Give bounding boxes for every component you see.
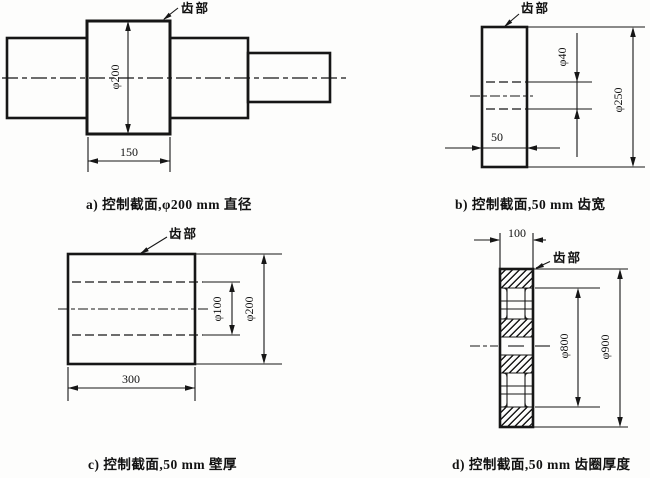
dim-outer-diameter: φ250	[611, 27, 636, 167]
extension-lines	[195, 254, 282, 364]
dim-bore-diameter: φ40	[555, 33, 580, 157]
gear-outline	[482, 27, 527, 167]
dim-bore-diameter: φ100	[210, 282, 235, 335]
gear-part-label: 齿部	[181, 1, 210, 16]
dim-outer-diameter: φ900	[598, 269, 623, 427]
dim-outer-diameter: φ200	[242, 254, 267, 364]
dim-label-100: 100	[508, 226, 526, 240]
caption-d: d) 控制截面,50 mm 齿圈厚度	[452, 453, 631, 473]
caption-c: c) 控制截面,50 mm 壁厚	[88, 453, 237, 473]
gear-part-label: 齿部	[521, 1, 550, 16]
extension-lines	[527, 27, 645, 167]
wheel-section-outline	[500, 269, 533, 427]
gear-part-leader: 齿部	[163, 1, 210, 21]
dim-label-150: 150	[120, 145, 138, 159]
dim-face-width: 50	[445, 130, 560, 151]
caption-a: a) 控制截面,φ200 mm 直径	[86, 193, 252, 213]
dim-label-phi200: φ200	[242, 297, 256, 322]
dim-label-phi40: φ40	[555, 48, 569, 67]
gear-part-label: 齿部	[553, 250, 582, 265]
gear-part-label: 齿部	[169, 226, 198, 241]
technical-drawing-page: φ200 150 齿部	[0, 0, 650, 478]
dim-hub-width: 100	[474, 226, 546, 268]
dim-label-phi200: φ200	[108, 65, 122, 90]
dim-length: 300	[68, 367, 195, 401]
figure-c-drawing: φ100 φ200 300 齿部	[40, 225, 340, 415]
dim-label-phi100: φ100	[210, 297, 224, 322]
figure-d-drawing: 100 φ800 φ900 齿部	[440, 225, 650, 440]
gear-part-leader: 齿部	[504, 1, 550, 28]
dim-label-50: 50	[491, 130, 503, 144]
web-and-hole-lines	[500, 288, 533, 407]
dim-label-300: 300	[122, 372, 140, 386]
figure-a-drawing: φ200 150 齿部	[0, 0, 360, 215]
extension-lines	[533, 269, 628, 427]
caption-b: b) 控制截面,50 mm 齿宽	[455, 193, 606, 213]
dim-label-phi900: φ900	[598, 335, 612, 360]
section-boundary-lines	[500, 288, 533, 407]
dim-rim-inner-diameter: φ800	[557, 288, 581, 407]
gear-part-leader: 齿部	[140, 226, 198, 254]
dim-label-phi800: φ800	[557, 334, 571, 359]
dim-gear-width: 150	[88, 137, 170, 172]
figure-b-drawing: φ250 φ40 50 齿部	[425, 0, 650, 215]
gear-part-leader: 齿部	[535, 250, 582, 269]
dim-label-phi250: φ250	[611, 88, 625, 113]
